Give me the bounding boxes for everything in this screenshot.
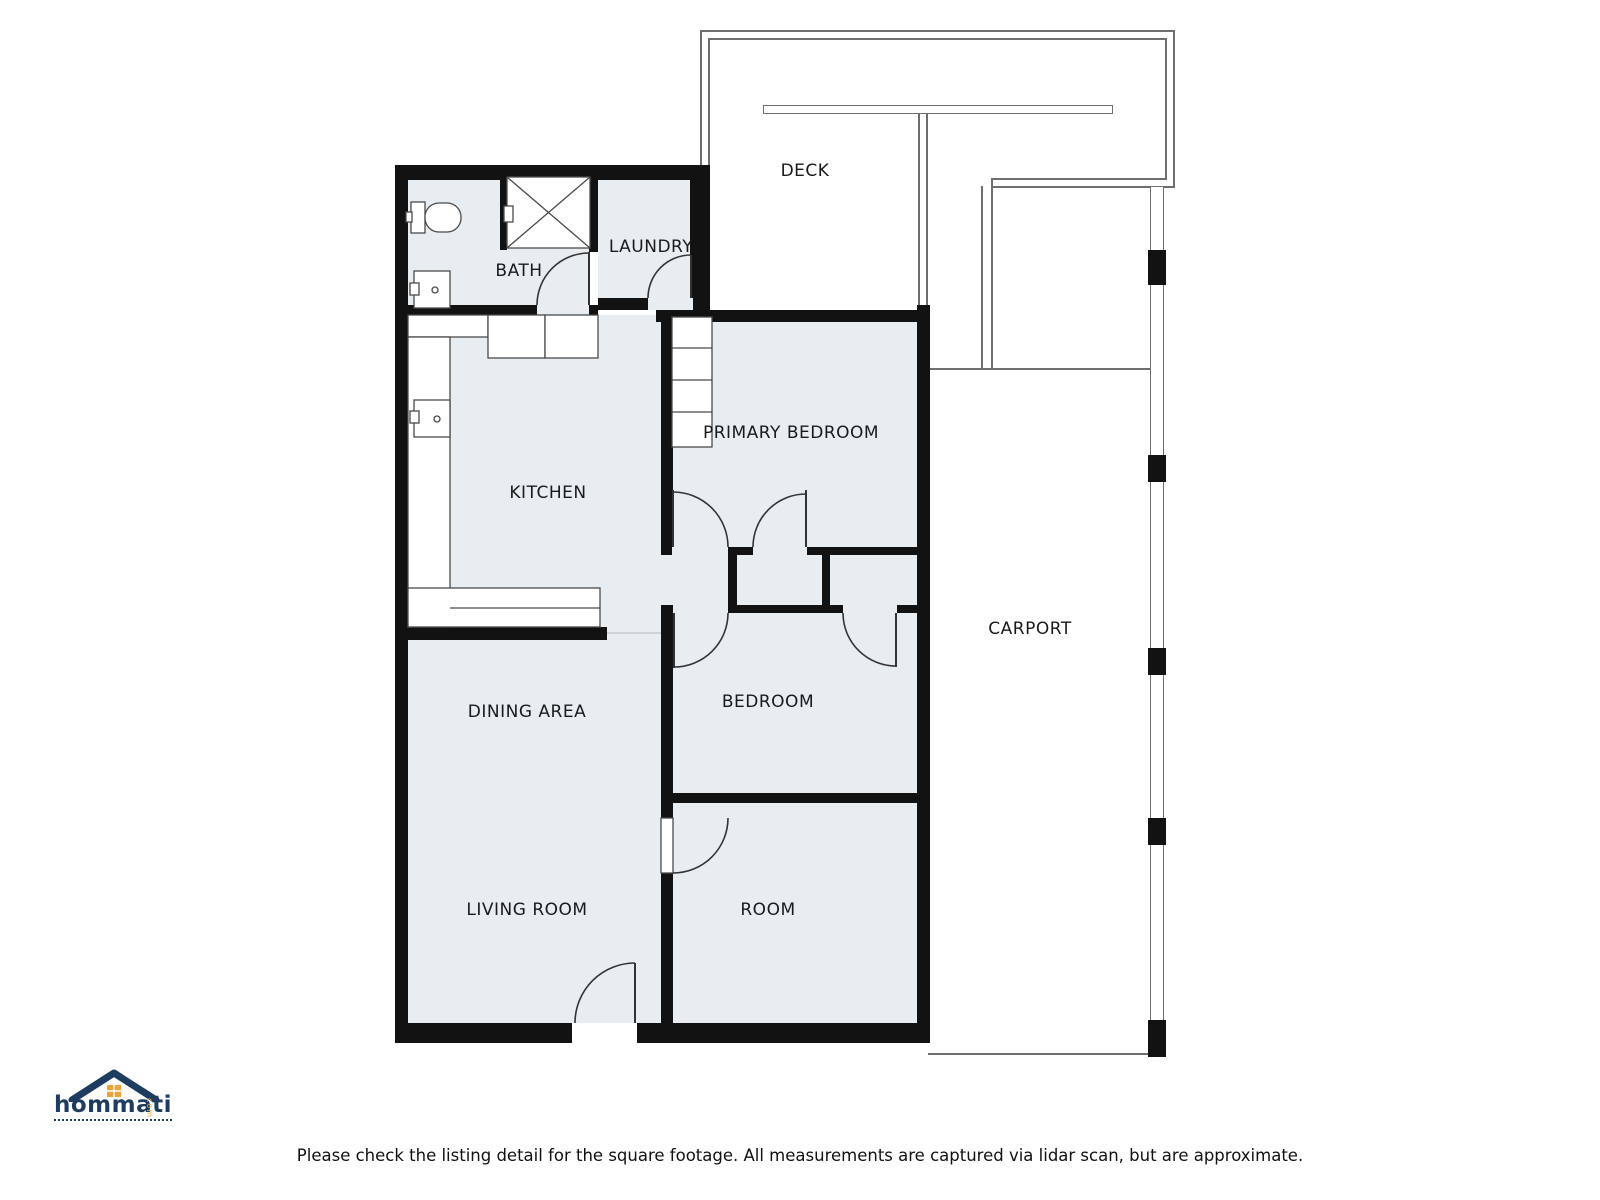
logo-brand-text: hommati — [54, 1092, 172, 1121]
room-label-bath: BATH — [495, 261, 542, 281]
hommati-logo: hommati com — [52, 1066, 182, 1130]
door-swing-arc — [843, 613, 896, 666]
door-swing-arc — [673, 818, 728, 873]
room-label-dining-area: DINING AREA — [468, 702, 586, 722]
fixture — [488, 315, 545, 358]
room-label-primary-bedroom: PRIMARY BEDROOM — [703, 423, 879, 443]
room-label-bedroom: BEDROOM — [722, 692, 814, 712]
fixture — [408, 337, 450, 627]
door-swing-arc — [674, 613, 728, 667]
door-swing-arc — [673, 492, 728, 547]
fixture — [411, 202, 425, 233]
room-label-living-room: LIVING ROOM — [466, 900, 587, 920]
toilet-bowl — [425, 203, 461, 232]
room-label-laundry: LAUNDRY — [609, 237, 693, 257]
fixture — [410, 411, 419, 423]
logo-tld-text: com — [145, 1098, 154, 1118]
door-swing-arc — [537, 253, 589, 305]
fixture — [661, 818, 673, 873]
room-label-room: ROOM — [740, 900, 795, 920]
fixture — [408, 315, 488, 337]
fixture — [406, 212, 412, 222]
fixture — [504, 206, 513, 222]
disclaimer-text: Please check the listing detail for the … — [0, 1146, 1600, 1165]
fixture — [545, 315, 598, 358]
fixture — [410, 283, 419, 295]
door-swing-arc — [753, 494, 806, 547]
floorplan-page: DECKBATHLAUNDRYKITCHENPRIMARY BEDROOMDIN… — [0, 0, 1600, 1200]
room-label-carport: CARPORT — [988, 619, 1071, 639]
floorplan-drawing: DECKBATHLAUNDRYKITCHENPRIMARY BEDROOMDIN… — [0, 0, 1600, 1200]
door-swing-arc — [648, 255, 691, 298]
door-swing-arc — [575, 963, 635, 1023]
room-label-kitchen: KITCHEN — [509, 483, 586, 503]
room-label-deck: DECK — [781, 161, 830, 181]
